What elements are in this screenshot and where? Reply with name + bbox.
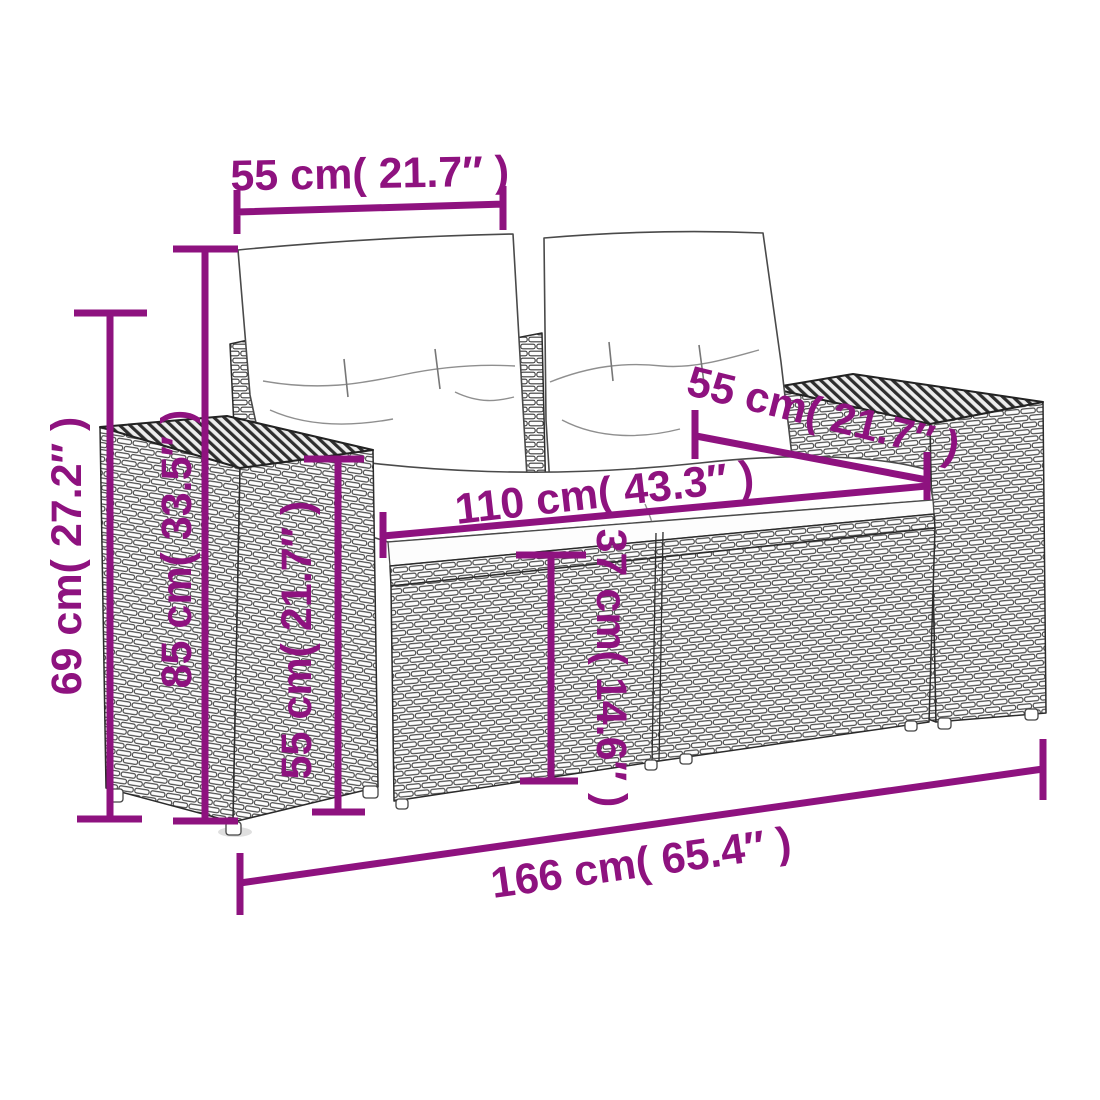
armrest-foot [938, 718, 951, 729]
armrest-foot [363, 786, 378, 798]
dim-label-backrest-cushion-width: 55 cm( 21.7″ ) [230, 148, 510, 201]
dim-label-backrest-height: 85 cm( 33.5″ ) [153, 410, 201, 689]
seat-foot [645, 760, 657, 770]
dim-label-arm-top-height: 55 cm( 21.7″ ) [273, 501, 321, 780]
dim-label-overall-width: 166 cm( 65.4″ ) [488, 818, 794, 908]
dim-label-seat-height: 37 cm( 14.6″ ) [587, 529, 635, 808]
dim-label-armrest-height: 69 cm( 27.2″ ) [43, 417, 91, 696]
seat-foot [396, 799, 408, 809]
sofa-dimension-drawing: 55 cm( 21.7″ ) 69 cm( 27.2″ ) 85 cm( 33.… [0, 0, 1100, 1100]
sofa-line-art [100, 232, 1046, 837]
seat-foot [680, 754, 692, 764]
dimension-diagram: 55 cm( 21.7″ ) 69 cm( 27.2″ ) 85 cm( 33.… [0, 0, 1100, 1100]
dim-backrest-cushion-width: 55 cm( 21.7″ ) [230, 148, 510, 234]
armrest-foot [1025, 709, 1038, 720]
seat-foot [905, 721, 917, 731]
